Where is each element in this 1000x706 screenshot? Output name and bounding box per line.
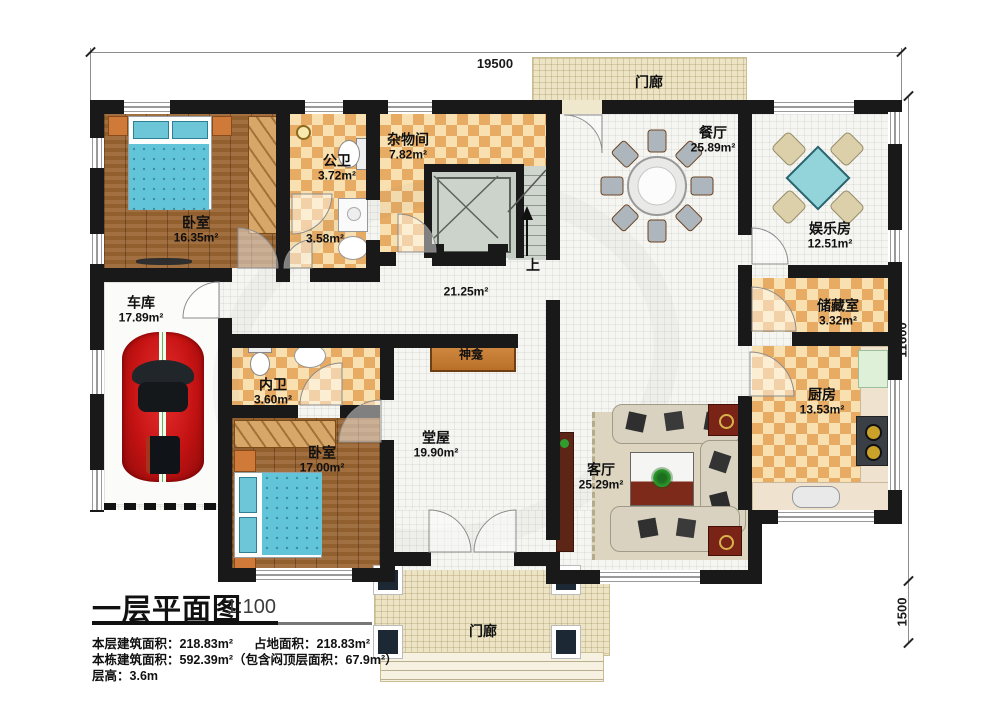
room-area: 17.00m² <box>300 461 345 474</box>
wall-segment <box>218 334 518 348</box>
wall-segment <box>104 268 232 282</box>
wall-segment <box>340 405 380 418</box>
stat-value: 592.39m² <box>180 653 234 667</box>
refrigerator <box>858 350 888 388</box>
room-label-bedroom-2: 卧室 17.00m² <box>300 445 345 474</box>
floor-plan-canvas: 卧室 16.35m² 公卫 3.72m² 杂物间 7.82m² 3.58m² 餐… <box>0 0 1000 706</box>
room-label-corridor: 21.25m² <box>444 285 489 298</box>
wall-segment <box>380 440 394 568</box>
burner <box>865 424 882 441</box>
title-underline <box>278 622 372 625</box>
room-name: 客厅 <box>579 462 624 478</box>
room-label-ensuite-bath: 内卫 3.60m² <box>254 377 292 406</box>
bed-double <box>128 116 212 210</box>
coffee-table <box>630 452 694 506</box>
toilet-bowl <box>250 352 270 376</box>
window <box>888 112 902 144</box>
room-label-entertainment: 娱乐房 12.51m² <box>808 221 853 250</box>
dimension-top-value: 19500 <box>477 56 513 71</box>
window <box>778 510 874 524</box>
window <box>388 100 432 114</box>
dimension-line-right <box>908 96 909 644</box>
decor <box>719 535 734 550</box>
cushion <box>709 451 732 474</box>
room-area: 17.89m² <box>119 311 164 324</box>
wall-segment <box>380 252 396 266</box>
room-label-storage: 储藏室 3.32m² <box>817 298 859 327</box>
room-area: 25.89m² <box>691 141 736 154</box>
cushion <box>676 518 696 538</box>
room-area: 3.72m² <box>318 169 356 182</box>
wall-segment <box>432 252 506 266</box>
window <box>256 568 352 582</box>
room-label-bedroom-1: 卧室 16.35m² <box>174 215 219 244</box>
car-engine <box>146 436 180 474</box>
wall-segment <box>488 244 508 252</box>
plant <box>560 439 569 448</box>
nightstand <box>234 450 256 472</box>
room-name: 卧室 <box>300 445 345 461</box>
wall-segment <box>738 114 752 235</box>
room-label-living: 客厅 25.29m² <box>579 462 624 491</box>
stat-label: 层高： <box>92 669 130 683</box>
wall-segment <box>366 114 380 200</box>
room-label-utility: 杂物间 7.82m² <box>387 132 429 161</box>
room-name: 杂物间 <box>387 132 429 148</box>
window <box>90 350 104 394</box>
window <box>90 234 104 264</box>
window <box>888 380 902 490</box>
cushion <box>638 518 659 539</box>
title-underline <box>92 621 278 625</box>
wall-segment <box>276 268 290 282</box>
cushion <box>664 411 684 431</box>
room-label-kitchen: 厨房 13.53m² <box>800 387 845 416</box>
wall-segment <box>276 114 290 282</box>
room-label-hall: 堂屋 19.90m² <box>414 430 459 459</box>
stat-note: （包含闷顶层面积：67.9m²） <box>233 653 398 667</box>
shower <box>338 198 368 232</box>
dimension-line-top <box>90 52 902 53</box>
wall-segment <box>424 244 444 252</box>
plant <box>653 469 671 487</box>
label-stairs-up: 上 <box>526 258 540 274</box>
shrine-name: 神龛 <box>459 348 483 361</box>
room-name: 堂屋 <box>414 430 459 446</box>
wall-segment <box>546 114 560 260</box>
pillow <box>172 121 208 139</box>
nightstand <box>212 116 232 136</box>
bed-double <box>234 472 322 558</box>
kitchen-sink <box>792 486 840 508</box>
wall-segment <box>546 300 560 540</box>
dimension-right-porch-value: 1500 <box>895 598 910 627</box>
porch-column <box>552 626 580 658</box>
room-name: 娱乐房 <box>808 221 853 237</box>
pillow <box>239 477 257 513</box>
wall-segment <box>366 240 380 268</box>
side-table <box>708 526 742 556</box>
wardrobe-bedroom-1 <box>248 116 278 234</box>
dimension-extension <box>90 48 91 100</box>
room-name: 厨房 <box>800 387 845 403</box>
entry-door-opening <box>562 100 602 114</box>
room-name: 车库 <box>119 295 164 311</box>
plan-scale: 1:100 <box>226 596 276 619</box>
tv-shelf <box>136 258 192 265</box>
light-fixture <box>296 125 311 140</box>
room-name: 储藏室 <box>817 298 859 314</box>
blanket <box>259 473 322 555</box>
shower-drain <box>347 207 361 221</box>
room-area: 16.35m² <box>174 231 219 244</box>
garage-door-dashed <box>104 503 218 510</box>
side-table <box>708 404 742 436</box>
elevator-cab <box>437 177 511 253</box>
stove <box>856 416 888 466</box>
stat-floor-height: 层高：3.6m <box>92 665 158 684</box>
room-name: 公卫 <box>318 153 356 169</box>
room-area: 3.32m² <box>817 314 859 327</box>
window <box>774 100 854 114</box>
window <box>888 230 902 262</box>
room-label-garage: 车库 17.89m² <box>119 295 164 324</box>
cushion <box>625 411 646 432</box>
room-name: 内卫 <box>254 377 292 393</box>
room-area: 25.29m² <box>579 478 624 491</box>
room-label-washroom: 3.58m² <box>306 232 344 245</box>
window <box>124 100 170 114</box>
window <box>600 570 700 584</box>
wall-segment <box>310 268 380 282</box>
stat-value: 3.6m <box>130 669 159 683</box>
wall-segment <box>218 318 232 568</box>
room-label-dining: 餐厅 25.89m² <box>691 125 736 154</box>
wall-segment <box>514 552 546 566</box>
room-area: 21.25m² <box>444 285 489 298</box>
wall-segment <box>738 265 752 278</box>
window <box>90 470 104 510</box>
wall-segment <box>395 552 431 566</box>
wall-segment <box>232 405 298 418</box>
label-shrine: 神龛 <box>459 348 483 361</box>
label-porch-bottom: 门廊 <box>469 624 497 640</box>
decor <box>719 414 734 429</box>
room-area: 7.82m² <box>387 148 429 161</box>
room-name: 餐厅 <box>691 125 736 141</box>
room-name: 卧室 <box>174 215 219 231</box>
car <box>122 332 204 482</box>
burner <box>865 444 882 461</box>
label-porch-top: 门廊 <box>635 75 663 91</box>
car-roof <box>138 382 188 412</box>
room-area: 19.90m² <box>414 446 459 459</box>
room-area: 12.51m² <box>808 237 853 250</box>
porch-name: 门廊 <box>635 75 663 91</box>
nightstand <box>108 116 128 136</box>
room-label-public-bath: 公卫 3.72m² <box>318 153 356 182</box>
room-area: 3.60m² <box>254 393 292 406</box>
blanket <box>129 141 209 210</box>
wall-segment <box>788 265 902 278</box>
wall-segment <box>738 332 752 346</box>
stairs-up-text: 上 <box>526 258 540 274</box>
pillow <box>239 517 257 553</box>
room-area: 13.53m² <box>800 403 845 416</box>
wall-segment <box>738 396 752 510</box>
room-area: 3.58m² <box>306 232 344 245</box>
pillow <box>133 121 169 139</box>
wall-segment <box>380 348 394 400</box>
porch-name: 门廊 <box>469 624 497 640</box>
window <box>305 100 343 114</box>
dimension-extension <box>901 48 902 100</box>
window <box>90 138 104 168</box>
wall-segment <box>792 332 902 346</box>
